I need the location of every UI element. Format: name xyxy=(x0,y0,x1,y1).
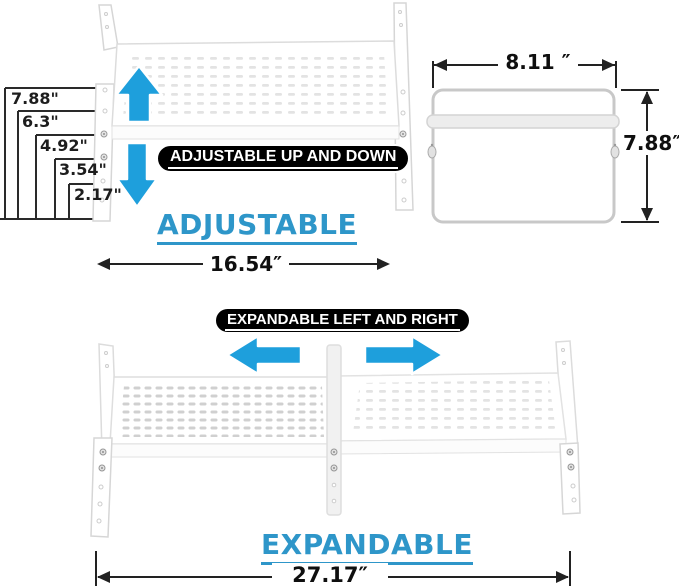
height-label-217: 2.17" xyxy=(74,185,122,204)
bottom-shelf-illustration xyxy=(91,341,580,537)
height-label-354: 3.54" xyxy=(59,160,107,179)
adjustable-callout-badge: ADJUSTABLE UP AND DOWN xyxy=(156,144,410,173)
width-dimension-top-label: 16.54″ xyxy=(203,252,289,276)
product-infographic: 7.88" 6.3" 4.92" 3.54" 2.17" ADJUSTABLE … xyxy=(0,0,679,587)
side-view-height-label: 7.88″ xyxy=(623,131,679,155)
left-arrow-icon xyxy=(227,336,301,374)
right-arrow-icon xyxy=(365,336,443,374)
expandable-title: EXPANDABLE xyxy=(261,528,473,565)
expandable-callout-text: EXPANDABLE LEFT AND RIGHT xyxy=(225,311,460,331)
side-view-width-label: 8.11 ″ xyxy=(498,50,578,74)
expandable-callout-badge: EXPANDABLE LEFT AND RIGHT xyxy=(214,307,471,334)
illustration-layer xyxy=(0,0,679,587)
height-label-492: 4.92" xyxy=(40,136,88,155)
down-arrow-icon xyxy=(117,143,157,207)
adjustable-callout-text: ADJUSTABLE UP AND DOWN xyxy=(168,148,398,169)
adjustable-title: ADJUSTABLE xyxy=(157,208,357,245)
height-label-788: 7.88" xyxy=(11,89,59,108)
width-dimension-bottom-label: 27.17″ xyxy=(272,563,388,587)
height-label-63: 6.3" xyxy=(22,112,59,131)
